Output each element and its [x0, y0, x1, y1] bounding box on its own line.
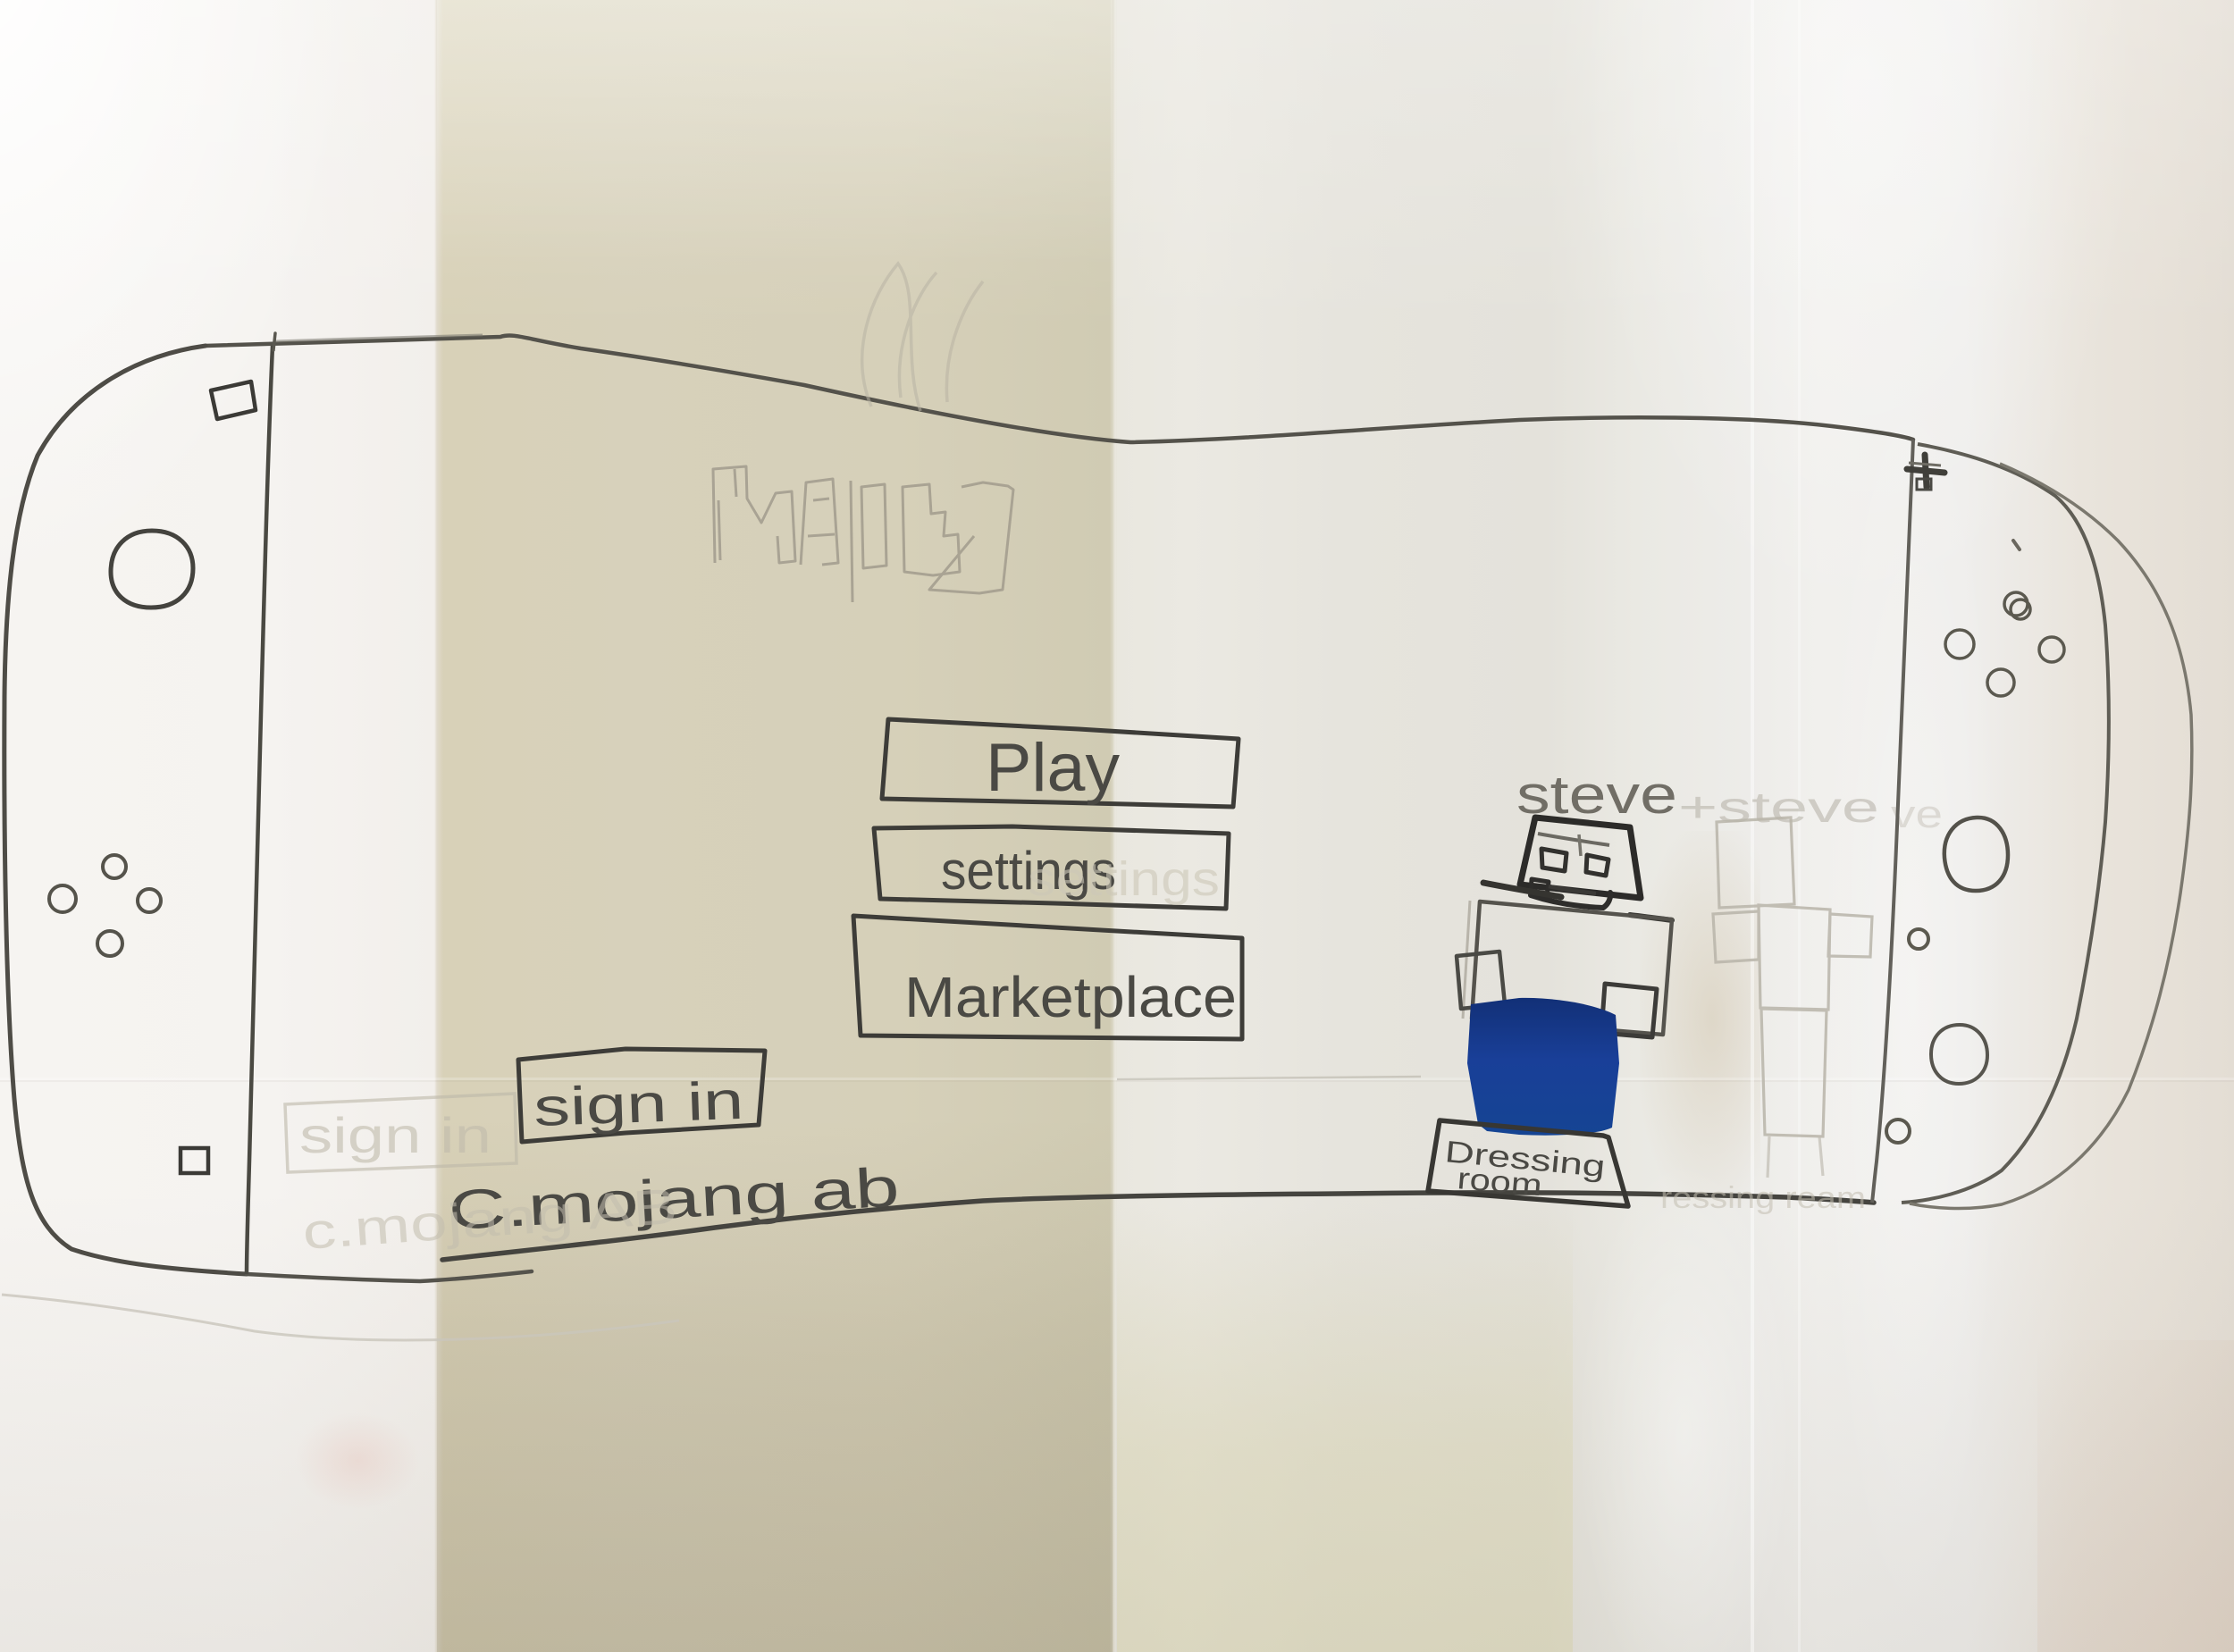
svg-text:settings: settings	[1028, 852, 1220, 906]
svg-text:Play: Play	[986, 730, 1120, 806]
svg-text:c.mojang AB: c.mojang AB	[300, 1178, 678, 1260]
svg-text:sign in: sign in	[533, 1070, 744, 1137]
svg-text:room: room	[1456, 1161, 1543, 1203]
svg-text:Marketplace: Marketplace	[904, 965, 1237, 1029]
svg-text:+steve: +steve	[1678, 784, 1879, 832]
svg-text:sign in: sign in	[299, 1107, 491, 1163]
svg-text:ressing ream: ressing ream	[1660, 1181, 1866, 1215]
